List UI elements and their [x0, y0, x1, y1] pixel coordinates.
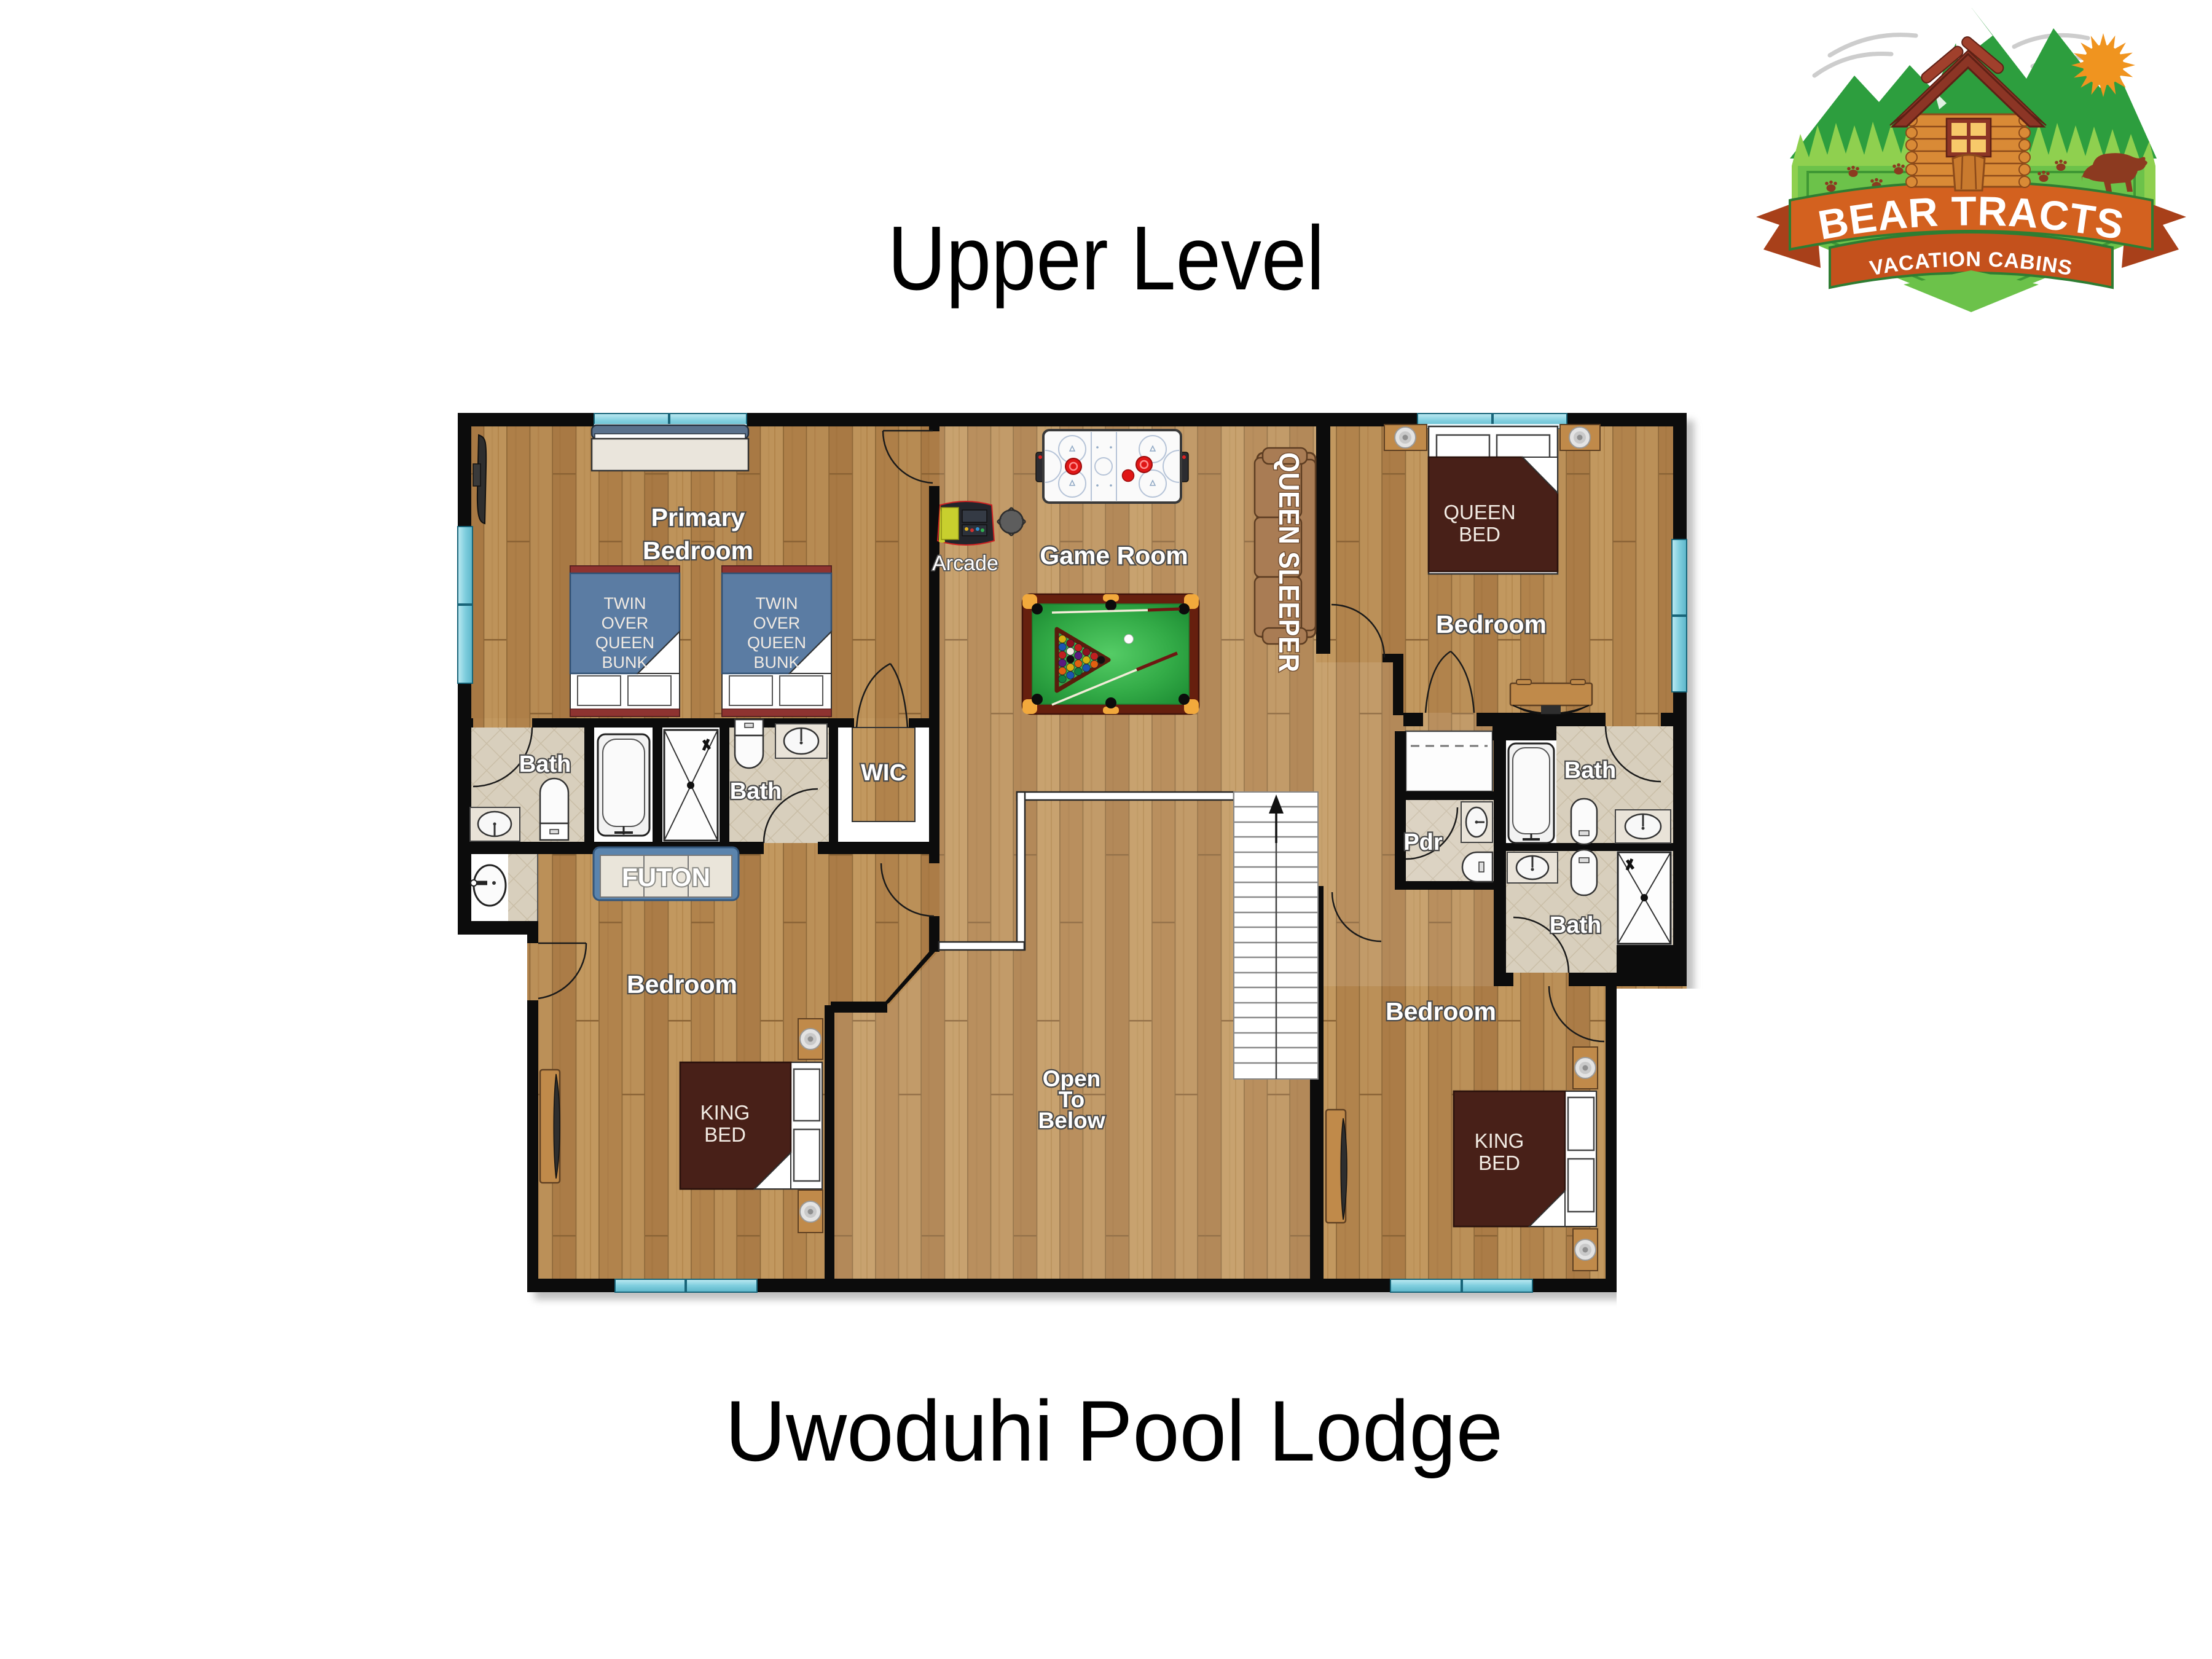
svg-text:Uwoduhi Pool Lodge: Uwoduhi Pool Lodge [725, 1382, 1503, 1479]
svg-text:Bedroom: Bedroom [643, 536, 753, 565]
svg-text:Bedroom: Bedroom [1436, 610, 1547, 638]
svg-text:Bath: Bath [519, 751, 571, 777]
svg-text:Pdr: Pdr [1403, 829, 1443, 855]
svg-text:TWIN: TWIN [604, 594, 646, 613]
svg-text:Game Room: Game Room [1040, 541, 1188, 570]
svg-text:Arcade: Arcade [932, 552, 998, 575]
svg-text:Bath: Bath [730, 779, 782, 804]
svg-text:Bedroom: Bedroom [627, 970, 737, 998]
svg-text:FUTON: FUTON [622, 863, 710, 892]
svg-text:BUNK: BUNK [602, 653, 648, 672]
svg-text:OVER: OVER [753, 614, 801, 632]
svg-text:Upper Level: Upper Level [888, 208, 1325, 309]
svg-text:Primary: Primary [651, 503, 745, 531]
svg-text:Bath: Bath [1550, 912, 1601, 938]
svg-text:BED: BED [1478, 1151, 1520, 1174]
svg-text:QUEEN: QUEEN [1443, 501, 1515, 524]
svg-text:BED: BED [704, 1123, 746, 1146]
svg-text:WIC: WIC [861, 760, 906, 786]
svg-text:QUEEN: QUEEN [595, 633, 654, 652]
svg-text:BED: BED [1459, 523, 1500, 546]
svg-text:TWIN: TWIN [756, 594, 798, 613]
svg-text:BUNK: BUNK [753, 653, 799, 672]
svg-text:QUEEN SLEEPER: QUEEN SLEEPER [1273, 452, 1305, 672]
svg-text:Below: Below [1038, 1108, 1105, 1133]
svg-text:OVER: OVER [602, 614, 649, 632]
svg-text:QUEEN: QUEEN [747, 633, 806, 652]
svg-text:Bedroom: Bedroom [1386, 997, 1496, 1026]
svg-text:KING: KING [1475, 1129, 1524, 1152]
svg-text:KING: KING [700, 1101, 750, 1124]
svg-text:Bath: Bath [1564, 758, 1616, 783]
